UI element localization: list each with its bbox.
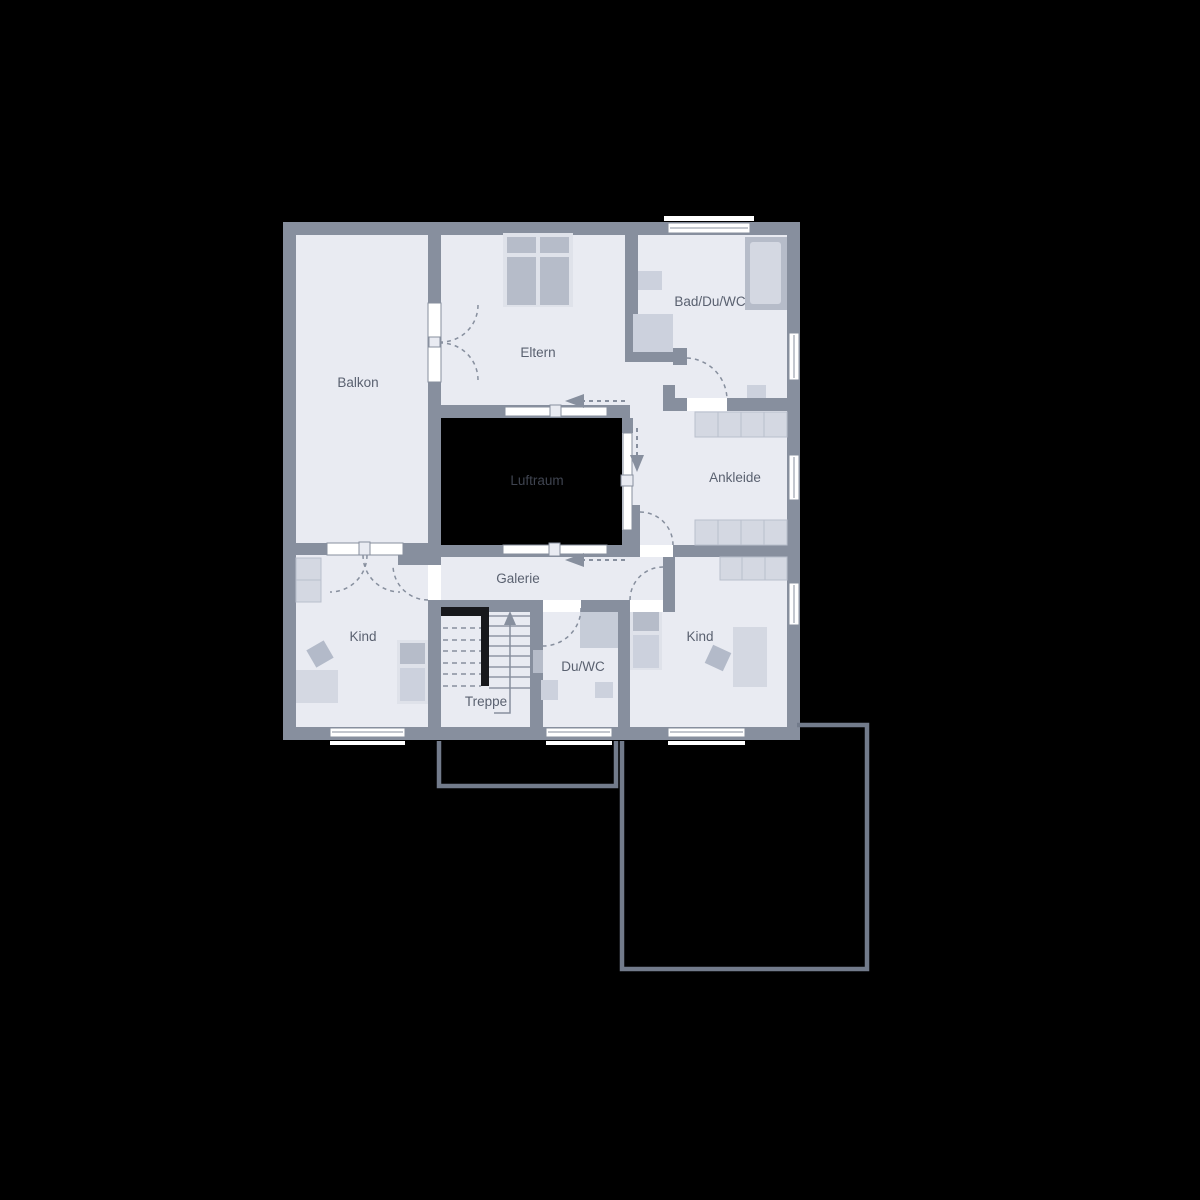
- wall-duwc-left: [530, 612, 543, 740]
- kindleft-bed-pillow: [400, 643, 425, 664]
- ankleide-door-threshold: [640, 545, 673, 557]
- bad-shower: [633, 314, 673, 352]
- duwc-washbasin: [595, 682, 613, 698]
- balkon-door-handle: [429, 337, 440, 347]
- wall-exterior-left: [283, 222, 296, 740]
- floor-plan-canvas: Balkon Eltern Bad/Du/WC Ankleide Luftrau…: [0, 0, 1200, 1200]
- wall-void-corner-top: [622, 418, 633, 433]
- railing-right-post: [621, 475, 633, 486]
- railing-bottom-post: [549, 543, 560, 556]
- window-top-outer: [664, 216, 754, 221]
- bad-wc: [747, 385, 766, 398]
- duwc-wc: [541, 680, 558, 700]
- room-label-kind-left: Kind: [349, 629, 376, 644]
- railing-top-post: [550, 405, 561, 417]
- kindleft-bed-mattress: [400, 668, 425, 701]
- room-label-kind-right: Kind: [686, 629, 713, 644]
- room-label-duwc: Du/WC: [561, 659, 605, 674]
- eltern-bed-pillow-left: [507, 237, 536, 253]
- wall-duwc-right: [618, 612, 630, 740]
- room-label-ankleide: Ankleide: [709, 470, 761, 485]
- window-kindright-outer: [668, 741, 745, 745]
- window-duwc-outer: [546, 741, 612, 745]
- room-label-luftraum: Luftraum: [510, 473, 563, 488]
- lower-floor-outlines: [439, 725, 867, 969]
- outline-stair-below: [439, 741, 616, 786]
- floor-plan-drawing: Balkon Eltern Bad/Du/WC Ankleide Luftrau…: [0, 0, 1200, 1200]
- eltern-bed-pillow-right: [540, 237, 569, 253]
- kindright-wardrobe: [720, 557, 787, 580]
- duwc-door-threshold: [543, 600, 581, 612]
- room-label-galerie: Galerie: [496, 571, 540, 586]
- bad-washbasin: [638, 271, 662, 290]
- outline-room-below: [622, 725, 867, 969]
- wall-bad-pier: [663, 385, 675, 398]
- duwc-shower: [580, 612, 618, 648]
- kindright-bed-pillow: [633, 611, 659, 631]
- wall-stair-left: [428, 612, 441, 740]
- kindleft-desk: [296, 670, 338, 703]
- room-label-eltern: Eltern: [520, 345, 555, 360]
- duwc-radiator: [533, 650, 543, 673]
- wall-kindright-left: [663, 557, 675, 612]
- eltern-bed-mattress-left: [507, 257, 536, 305]
- kindleft-door-threshold: [428, 565, 441, 600]
- room-label-balkon: Balkon: [337, 375, 378, 390]
- kindright-door-threshold: [630, 600, 663, 612]
- wall-ankleide-bottom: [673, 545, 787, 557]
- wall-bad-jog-cap: [673, 348, 687, 365]
- wall-balkon-right: [428, 222, 441, 565]
- kindright-bed-mattress: [633, 635, 659, 668]
- room-label-treppe: Treppe: [465, 694, 507, 709]
- bad-door-threshold: [687, 398, 727, 411]
- kindright-desk: [733, 627, 767, 687]
- french-door-handle: [359, 542, 370, 555]
- eltern-bed-mattress-right: [540, 257, 569, 305]
- window-kindleft-outer: [330, 741, 405, 745]
- stair-wall-accent-v: [481, 607, 489, 686]
- bathtub: [750, 242, 781, 304]
- room-label-bad: Bad/Du/WC: [674, 294, 746, 309]
